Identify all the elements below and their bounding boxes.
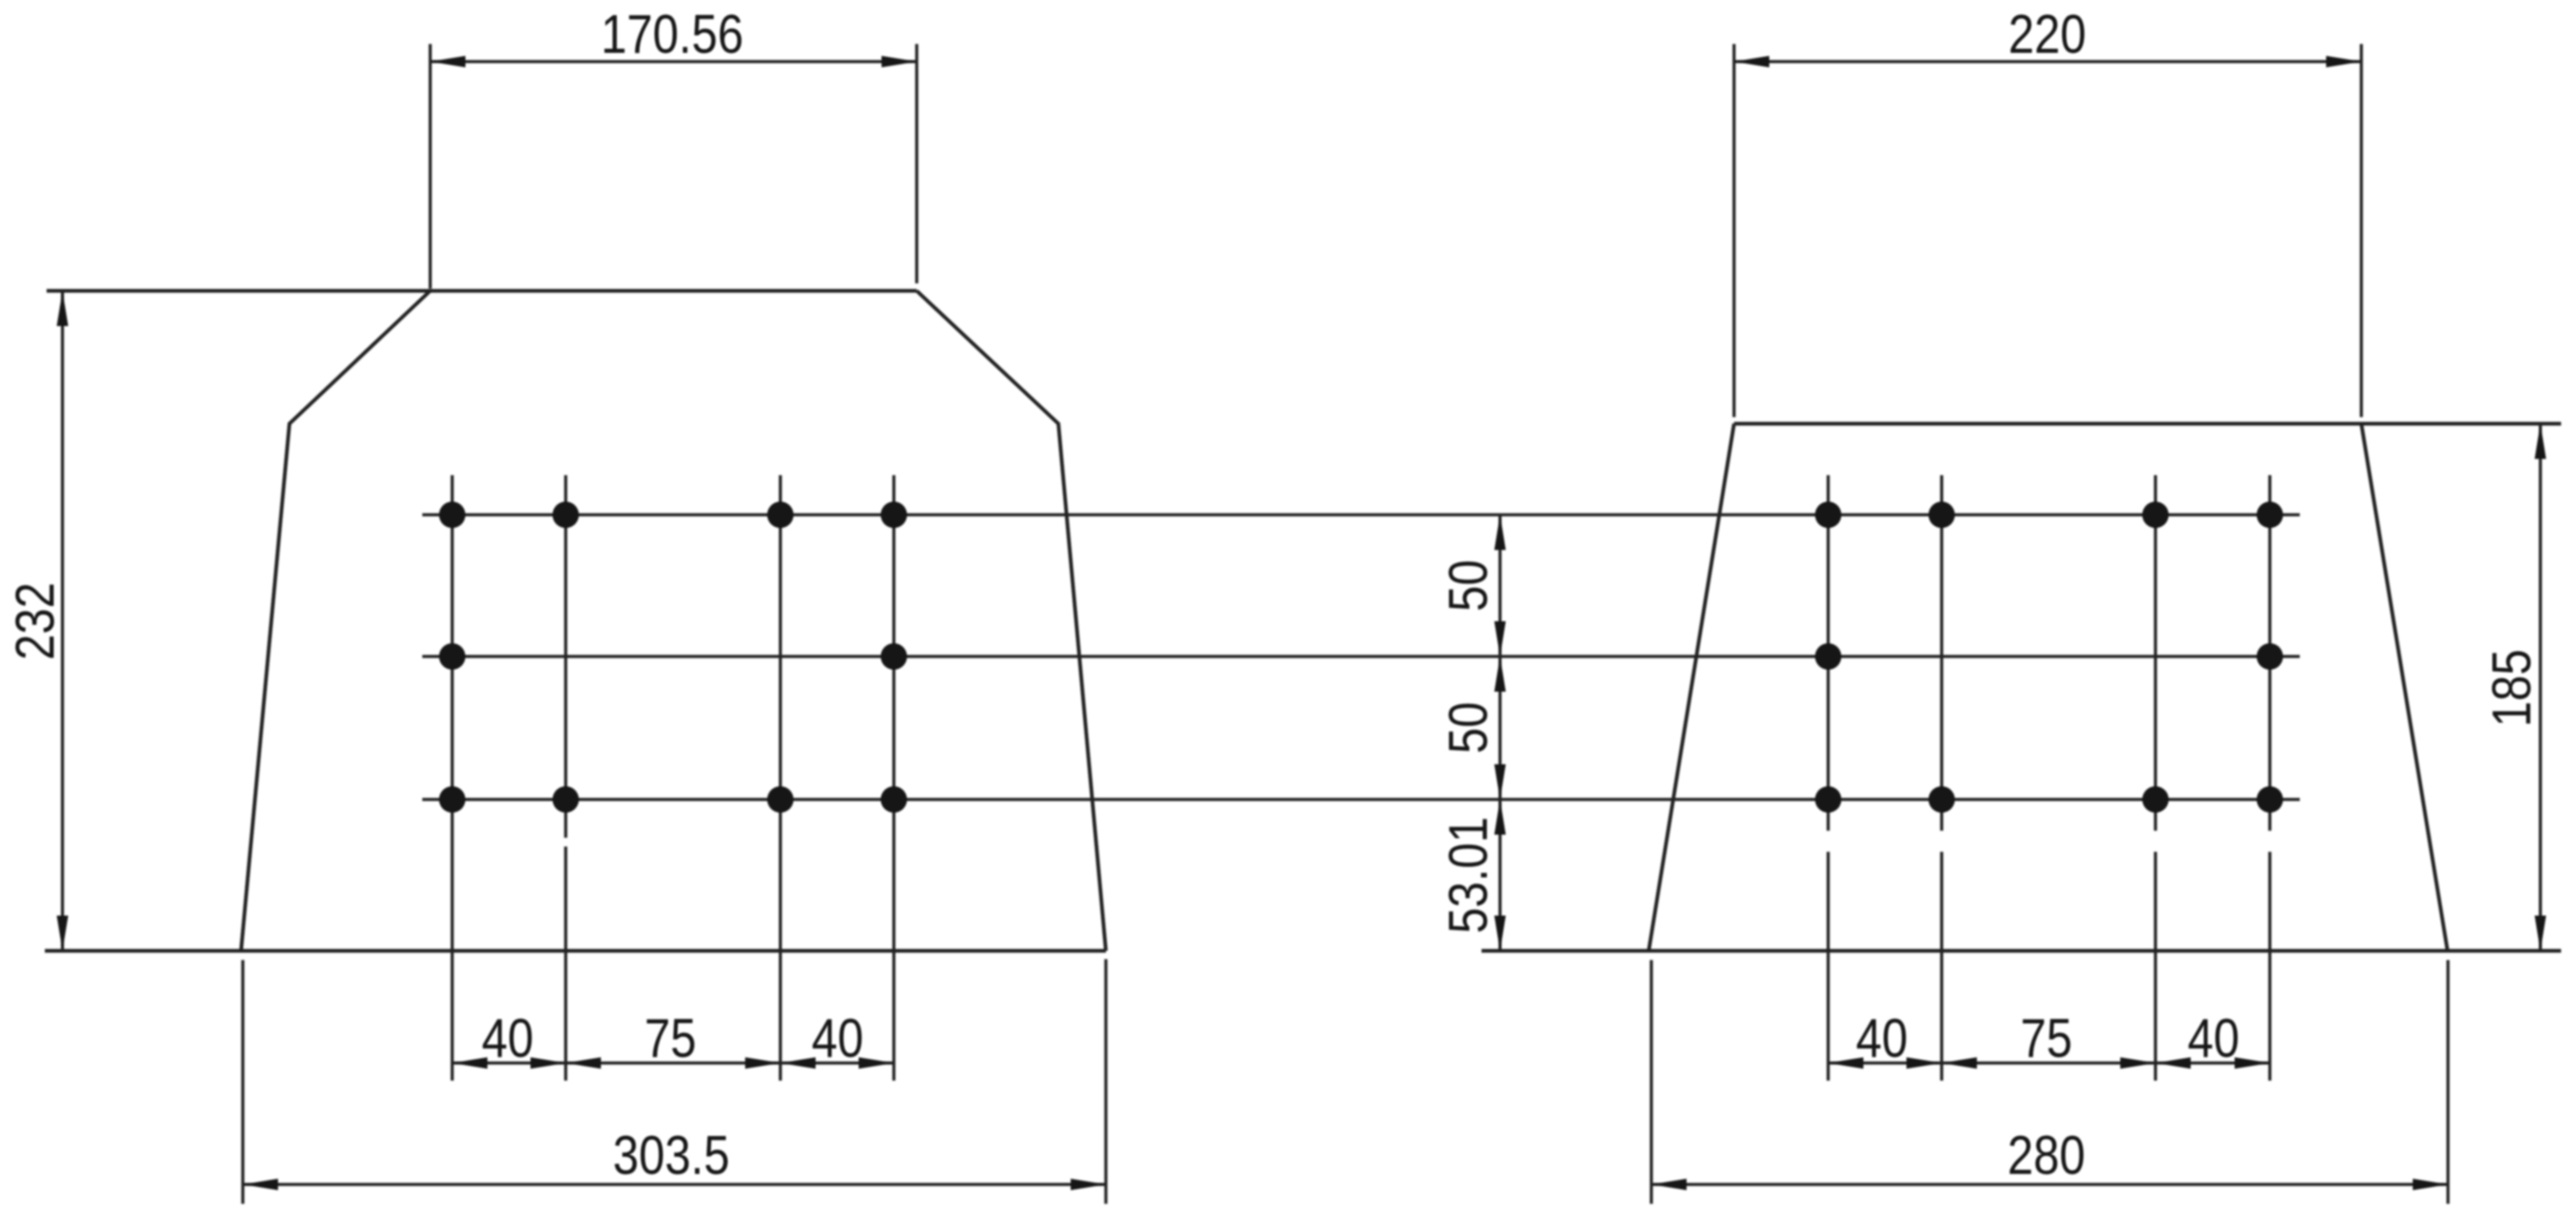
svg-text:232: 232: [5, 583, 66, 660]
svg-text:75: 75: [2021, 1008, 2073, 1069]
svg-text:75: 75: [645, 1008, 697, 1069]
svg-text:185: 185: [2482, 649, 2543, 727]
svg-text:53.01: 53.01: [1438, 817, 1499, 934]
svg-text:50: 50: [1438, 560, 1499, 612]
svg-text:40: 40: [482, 1008, 534, 1069]
svg-text:303.5: 303.5: [613, 1125, 730, 1186]
svg-text:40: 40: [812, 1008, 864, 1069]
svg-text:280: 280: [2008, 1125, 2085, 1186]
svg-text:40: 40: [1856, 1008, 1908, 1069]
svg-text:50: 50: [1438, 702, 1499, 754]
svg-text:220: 220: [2009, 4, 2086, 65]
svg-text:40: 40: [2188, 1008, 2240, 1069]
svg-text:170.56: 170.56: [601, 4, 743, 65]
